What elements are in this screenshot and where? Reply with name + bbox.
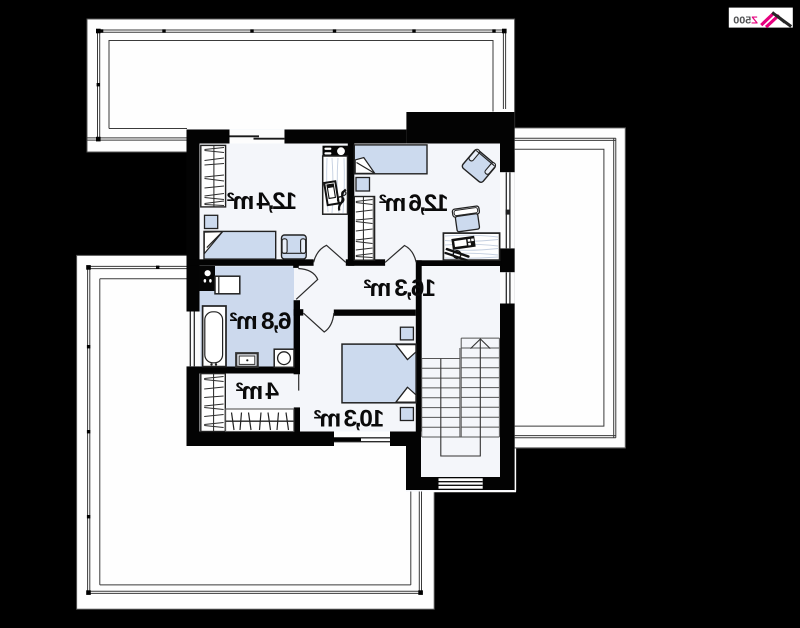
svg-text:6,8 m²: 6,8 m² [230,308,292,335]
svg-text:4 m²: 4 m² [236,378,280,405]
svg-text:16,3 m²: 16,3 m² [363,275,436,302]
svg-text:12,4 m²: 12,4 m² [227,188,297,215]
svg-text:10,3 m²: 10,3 m² [314,406,385,433]
svg-text:Z500: Z500 [733,16,758,27]
svg-text:12,6 m²: 12,6 m² [379,190,449,217]
